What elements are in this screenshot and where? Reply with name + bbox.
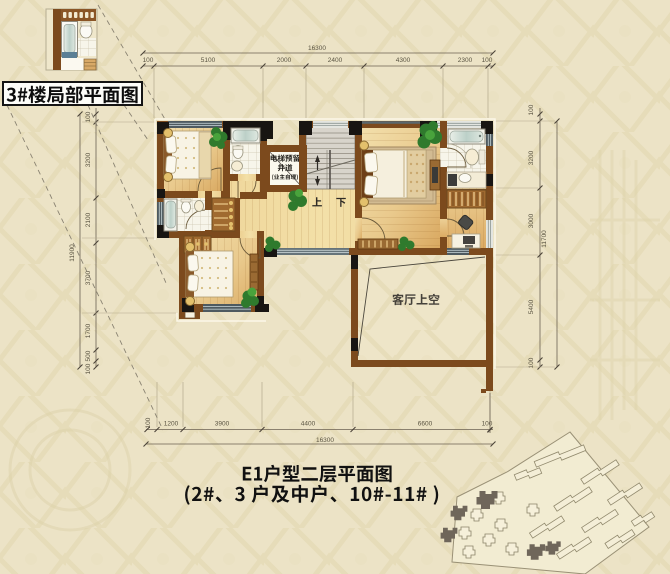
svg-text:100: 100 [143,57,154,64]
svg-text:3200: 3200 [85,152,92,167]
svg-text:3200: 3200 [528,150,535,165]
svg-text:16300: 16300 [316,437,334,444]
svg-text:100: 100 [482,421,493,428]
svg-text:4400: 4400 [301,421,316,428]
svg-text:100: 100 [85,363,92,374]
svg-text:100: 100 [482,57,493,64]
svg-text:3900: 3900 [215,421,230,428]
svg-text:2300: 2300 [458,57,473,64]
svg-text:3700: 3700 [85,270,92,285]
svg-text:16300: 16300 [308,45,326,52]
svg-text:5400: 5400 [528,299,535,314]
svg-text:2000: 2000 [277,57,292,64]
svg-text:100: 100 [528,104,535,115]
svg-text:500: 500 [85,350,92,361]
svg-text:2400: 2400 [328,57,343,64]
svg-text:2100: 2100 [85,212,92,227]
svg-text:100: 100 [145,417,152,428]
svg-text:1700: 1700 [85,323,92,338]
svg-text:4300: 4300 [396,57,411,64]
svg-text:5100: 5100 [201,57,216,64]
svg-text:1200: 1200 [164,421,179,428]
svg-text:11700: 11700 [541,230,548,248]
svg-text:3000: 3000 [528,213,535,228]
svg-text:100: 100 [85,111,92,122]
svg-text:6600: 6600 [418,421,433,428]
